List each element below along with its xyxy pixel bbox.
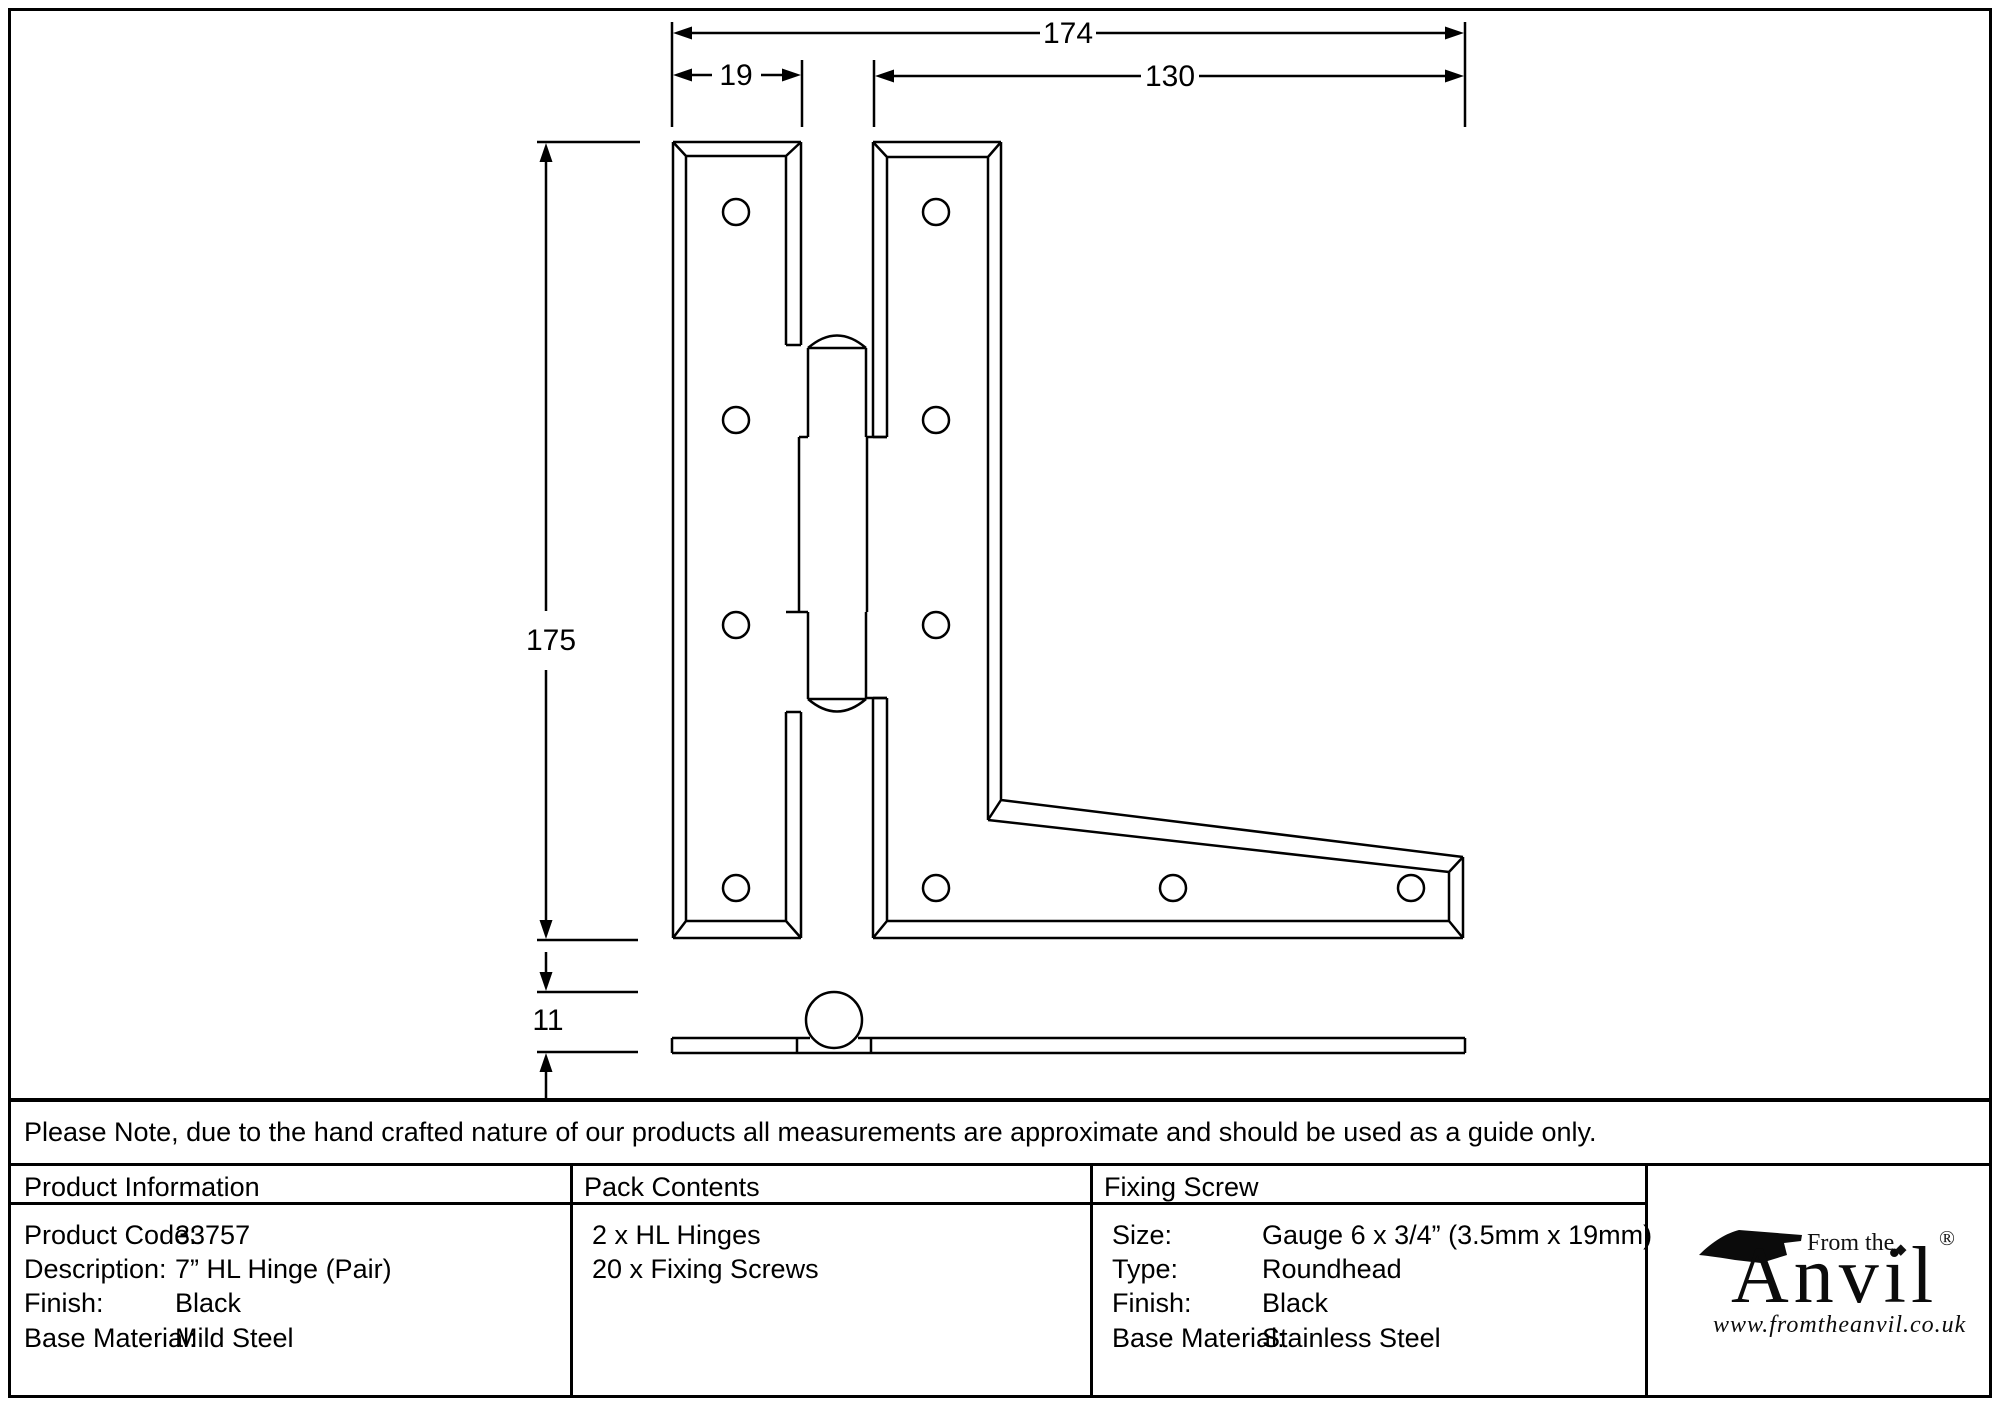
column-divider-1 (570, 1163, 573, 1398)
header-row-bottom-border (8, 1202, 1648, 1205)
screw-hole (723, 199, 749, 225)
screw-hole (923, 612, 949, 638)
pin-knuckle-bump (806, 992, 862, 1048)
spec-value: Gauge 6 x 3/4” (3.5mm x 19mm) (1262, 1220, 1652, 1250)
spec-value: Mild Steel (175, 1323, 294, 1353)
spec-label: Base Material: (1112, 1323, 1285, 1353)
screw-holes (723, 199, 1424, 901)
spec-value: Roundhead (1262, 1254, 1402, 1284)
screw-hole (1160, 875, 1186, 901)
dim-label-thickness: 11 (532, 1004, 563, 1037)
hinge-right-leaf (873, 142, 1463, 938)
spec-label: Finish: (1112, 1288, 1192, 1318)
pack-contents-line: 20 x Fixing Screws (592, 1254, 819, 1284)
pack-contents-line: 2 x HL Hinges (592, 1220, 761, 1250)
spec-label: Product Code: (24, 1220, 197, 1250)
screw-hole (923, 199, 949, 225)
spec-label: Base Material: (24, 1323, 197, 1353)
screw-hole (923, 407, 949, 433)
brand-logo: Anvil From the ◆ ® www.fromtheanvil.co.u… (1647, 1166, 1992, 1398)
screw-hole (923, 875, 949, 901)
header-product-information: Product Information (24, 1172, 260, 1202)
screw-hole (723, 407, 749, 433)
measurement-note: Please Note, due to the hand crafted nat… (24, 1117, 1597, 1147)
spec-value: 33757 (175, 1220, 250, 1250)
dim-label-arm-length: 130 (1145, 60, 1195, 93)
spec-label: Description: (24, 1254, 167, 1284)
spec-label: Size: (1112, 1220, 1172, 1250)
spec-value: 7” HL Hinge (Pair) (175, 1254, 392, 1284)
spec-label: Type: (1112, 1254, 1178, 1284)
dim-175-line (537, 142, 640, 940)
brand-url: www.fromtheanvil.co.uk (1713, 1312, 1966, 1339)
screw-hole (1398, 875, 1424, 901)
screw-hole (723, 612, 749, 638)
brand-tagline: From the (1807, 1230, 1894, 1257)
spec-value: Black (175, 1288, 241, 1318)
column-divider-2 (1090, 1163, 1093, 1398)
side-view-plate (672, 1038, 1465, 1053)
header-pack-contents: Pack Contents (584, 1172, 760, 1202)
diamond-icon: ◆ (1895, 1240, 1907, 1258)
hinge-left-leaf (673, 142, 801, 938)
dim-label-overall-width: 174 (1043, 17, 1093, 50)
header-fixing-screw: Fixing Screw (1104, 1172, 1259, 1202)
spec-value: Stainless Steel (1262, 1323, 1441, 1353)
screw-hole (723, 875, 749, 901)
spec-value: Black (1262, 1288, 1328, 1318)
registered-mark: ® (1939, 1226, 1955, 1251)
spec-label: Finish: (24, 1288, 104, 1318)
note-row-top-border (8, 1098, 1992, 1102)
dim-label-height: 175 (526, 624, 576, 657)
hinge-side-view (672, 992, 1465, 1053)
dim-label-leaf-width: 19 (719, 59, 752, 92)
datasheet-page: 174 19 130 175 11 Please Note, due to th… (0, 0, 2000, 1406)
